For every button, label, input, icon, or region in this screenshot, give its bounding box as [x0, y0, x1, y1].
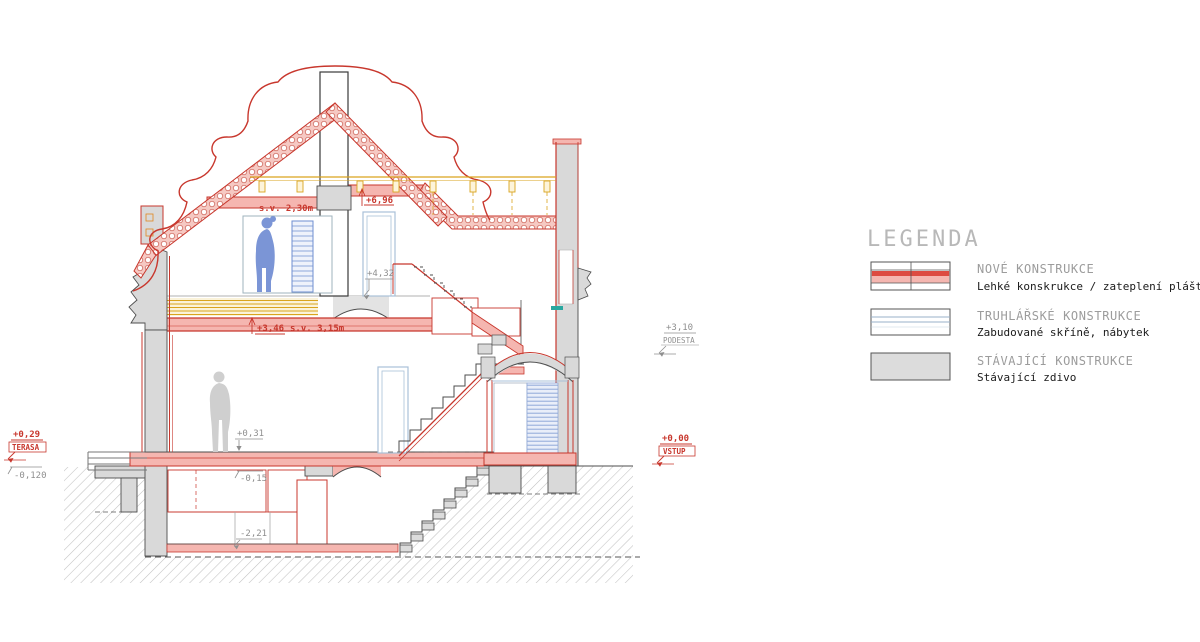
- entrance-footing: [489, 466, 521, 493]
- level-text: +6,96: [366, 196, 393, 206]
- ground-floor-door: [378, 367, 408, 453]
- level-text: -0,15: [240, 474, 267, 484]
- threshold-slab: [484, 453, 576, 465]
- wall-recess: [559, 250, 573, 304]
- legend-label: NOVÉ KONSTRUKCE: [977, 261, 1094, 276]
- person-silhouette-ground: [210, 372, 231, 453]
- right-cornice: [578, 268, 591, 300]
- level-label: VSTUP: [663, 447, 686, 456]
- legend-item-joinery: TRUHLÁŘSKÉ KONSTRUKCE Zabudované skříně,…: [871, 308, 1150, 339]
- level-text: +3,46: [257, 324, 284, 334]
- legend-item-existing: STÁVAJÍCÍ KONSTRUKCE Stávající zdivo: [871, 353, 1134, 384]
- legend-desc: Lehké konskrukce / zateplení pláště obje…: [977, 280, 1200, 293]
- marker-m0120: -0,120: [8, 467, 47, 481]
- legend-label: STÁVAJÍCÍ KONSTRUKCE: [977, 353, 1134, 368]
- basement-room: [167, 466, 400, 556]
- marker-310-podesta: +3,10 PODESTA: [654, 323, 699, 357]
- level-text: +0,00: [662, 434, 689, 444]
- level-label: PODESTA: [663, 336, 695, 345]
- louver-door: [527, 383, 558, 460]
- stair-core: [432, 298, 478, 334]
- clear-height-attic: s.v. 2,30m: [259, 204, 314, 214]
- basement-left-wall: [145, 466, 167, 556]
- level-text: +4,32: [367, 269, 394, 279]
- legend: LEGENDA NOVÉ KONSTRUKCE Lehké konskrukce…: [867, 227, 1200, 384]
- section-drawing: +6,96 s.v. 2,30m +3,46 s.v. 3,15m +4,32 …: [0, 0, 1200, 642]
- terrace-footing: [95, 466, 147, 478]
- sill-accent: [551, 306, 563, 310]
- clear-height-floor: s.v. 3,15m: [290, 324, 345, 334]
- level-text: -2,21: [240, 529, 267, 539]
- parapet-cap: [553, 139, 581, 144]
- level-text: +3,10: [666, 323, 693, 333]
- level-text: +0,31: [237, 429, 264, 439]
- attic-door: [363, 212, 395, 296]
- legend-title: LEGENDA: [867, 227, 981, 252]
- level-text: +0,29: [13, 430, 40, 440]
- legend-item-new-construction: NOVÉ KONSTRUKCE Lehké konskrukce / zatep…: [871, 261, 1200, 293]
- marker-029-terasa: +0,29 TERASA: [4, 430, 46, 463]
- ground-floor-interior: [210, 367, 408, 453]
- legend-desc: Zabudované skříně, nábytek: [977, 326, 1150, 339]
- level-text: -0,120: [14, 471, 47, 481]
- level-label: TERASA: [12, 443, 40, 452]
- entrance-door-leaf: [494, 383, 527, 460]
- marker-000-vstup: +0,00 VSTUP: [652, 434, 695, 467]
- legend-desc: Stávající zdivo: [977, 371, 1076, 384]
- legend-label: TRUHLÁŘSKÉ KONSTRUKCE: [977, 308, 1141, 323]
- drawing-sheet: +6,96 s.v. 2,30m +3,46 s.v. 3,15m +4,32 …: [0, 0, 1200, 642]
- basement-door: [297, 480, 327, 546]
- legend-swatch-existing: [871, 353, 950, 380]
- attic-interior: [243, 212, 395, 296]
- basement-floor-slab: [167, 544, 398, 552]
- marker-031: +0,31: [235, 429, 264, 451]
- lower-flight-steps: [399, 364, 487, 452]
